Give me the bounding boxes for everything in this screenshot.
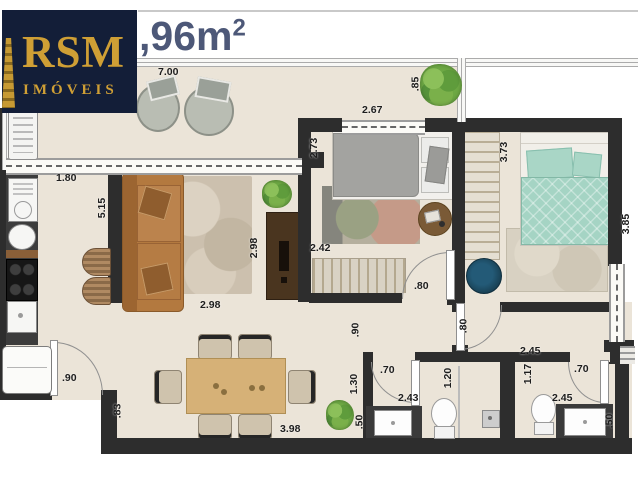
dining-chair-3 <box>198 414 232 440</box>
balcony-plant <box>420 64 462 106</box>
dim-bath1-width: 2.43 <box>398 392 418 404</box>
tv-cabinet <box>266 212 302 300</box>
dim-balcony-right-depth: .85 <box>409 77 421 92</box>
brand-name: RSM <box>22 26 125 78</box>
dim-living-width-h: 2.98 <box>200 299 220 311</box>
bath2-toilet-tank <box>534 422 554 435</box>
kitchen-sink-drainer <box>8 178 38 222</box>
dim-bath2-width: 2.45 <box>552 392 572 404</box>
suite-wardrobe <box>462 130 500 260</box>
bath1-door-gap <box>373 352 415 362</box>
suite-window <box>609 264 625 342</box>
wall-suite-bottom <box>500 302 612 312</box>
dining-chair-2 <box>238 334 272 360</box>
sheet-top-line <box>138 10 638 12</box>
bath1-toilet-bowl <box>431 398 457 429</box>
bedroom2-door-leaf <box>446 250 455 300</box>
bedroom2-closet-rack <box>312 258 406 296</box>
kitchen-sink-2 <box>7 301 37 333</box>
dim-hall-width: .90 <box>349 323 361 338</box>
kitchen-round-sink <box>8 224 36 250</box>
wall-right-upper <box>608 118 622 266</box>
bedroom2-side-table <box>418 202 452 236</box>
dim-entry-wall: .83 <box>111 404 123 419</box>
suite-round-rug <box>466 258 502 294</box>
bath1-shower-drain <box>482 410 500 428</box>
bath2-door-leaf <box>600 360 609 404</box>
bedroom2-bed <box>332 130 454 200</box>
wall-bedroom2-bottom <box>309 293 402 303</box>
dim-suite-length: 3.73 <box>498 142 510 162</box>
suite-duvet <box>521 177 609 245</box>
dining-plant <box>326 400 354 430</box>
bath1-toilet-tank <box>434 426 455 439</box>
brand-tagline: IMÓVEIS <box>23 82 118 99</box>
dim-living-width-v: 2.98 <box>248 238 260 258</box>
bar-stool-1 <box>82 248 111 276</box>
bath2-sink <box>564 408 606 436</box>
dining-chair-6 <box>288 370 316 404</box>
area-title: ,96m2 <box>139 13 246 60</box>
bath1-shower-partition <box>458 366 460 438</box>
refrigerator <box>2 346 52 394</box>
dim-bath1-door: .70 <box>380 364 395 376</box>
kitchen-wood-shelf <box>6 250 38 258</box>
dim-suite-width: 3.85 <box>620 214 632 234</box>
dim-entry-door: .90 <box>62 372 77 384</box>
suite-pillow-1 <box>526 147 574 180</box>
dim-bedroom2-depth: 2.73 <box>308 138 320 158</box>
dim-bath2-entry: 1.17 <box>522 364 534 384</box>
wall-bath2-right <box>615 362 629 438</box>
service-shaft <box>620 346 635 364</box>
wall-bottom <box>101 438 632 454</box>
dim-bedroom2-closet: 2.42 <box>310 242 330 254</box>
dining-chair-5 <box>154 370 182 404</box>
living-plant <box>262 180 292 208</box>
floorplan-canvas: 7.00 2.67 .85 1.80 5.15 2.73 2.42 2.98 2… <box>0 0 640 480</box>
bath1-sink <box>374 410 412 436</box>
brand-logo: RSM IMÓVEIS <box>2 10 137 113</box>
suite-bed <box>520 132 610 246</box>
dim-bath2-door: .70 <box>574 363 589 375</box>
dim-bedroom2-door: .80 <box>414 280 429 292</box>
dim-living-length: 5.15 <box>96 198 108 218</box>
dining-chair-1 <box>198 334 232 360</box>
dim-balcony-length: 7.00 <box>158 66 178 78</box>
wall-bedroom2-top-left <box>298 118 342 132</box>
stove-cooktop <box>6 259 38 301</box>
area-unit-sup: 2 <box>232 14 245 41</box>
dim-dining-length: 3.98 <box>280 423 300 435</box>
suite-pillow-2 <box>572 152 602 179</box>
sofa-pillow-2 <box>140 262 173 295</box>
dim-bath2-hall: 2.45 <box>520 345 540 357</box>
wall-bath-divider <box>500 362 515 438</box>
dim-bath1-entry: 1.30 <box>348 374 360 394</box>
lighthouse-icon <box>2 38 15 108</box>
sofa <box>122 172 184 312</box>
living-window <box>6 158 302 175</box>
area-value: ,96m <box>139 13 232 59</box>
dining-chair-4 <box>238 414 272 440</box>
dining-table <box>186 358 286 414</box>
dim-bath1-shower: 1.20 <box>442 368 454 388</box>
living-rug <box>176 176 252 294</box>
wall-suite-top <box>425 118 615 132</box>
bbq-grill <box>8 110 38 160</box>
dim-kitchen-width: 1.80 <box>56 172 76 184</box>
dim-suite-door: .80 <box>457 319 469 334</box>
bar-stool-2 <box>82 277 111 305</box>
dim-bath1-vanity: .50 <box>353 415 365 430</box>
bedroom2-window <box>342 120 425 135</box>
dim-balcony-right-width: 2.67 <box>362 104 382 116</box>
dim-bath2-vanity: .50 <box>603 414 615 429</box>
